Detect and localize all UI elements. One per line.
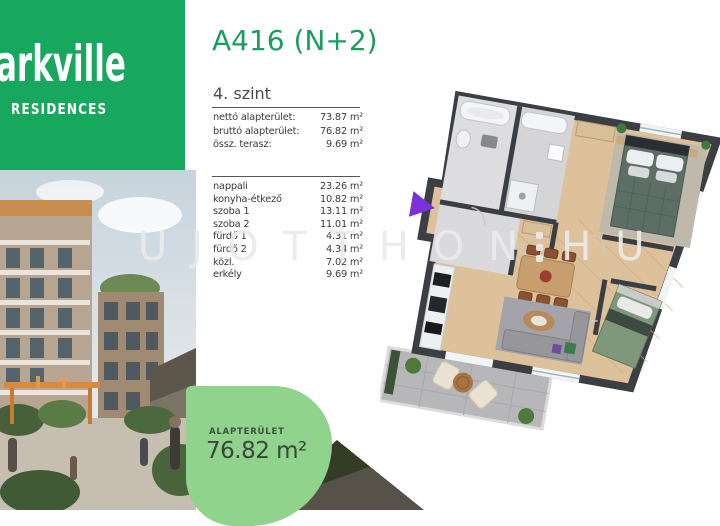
row-label: szoba 2 [213, 219, 249, 232]
row-value: 4.34 m² [326, 244, 363, 257]
row-label: közl. [213, 257, 234, 270]
summary-row: össz. terasz: 9.69 m² [213, 138, 363, 152]
row-label: konyha-étkező [213, 194, 282, 207]
floorplan-image [380, 78, 720, 482]
room-row: fürdő 2 4.34 m² [213, 244, 363, 257]
row-label: nappali [213, 181, 248, 194]
room-row: erkély 9.69 m² [213, 269, 363, 282]
row-label: bruttó alapterület: [213, 125, 299, 139]
row-value: 9.69 m² [326, 138, 363, 152]
room-row: szoba 1 13.11 m² [213, 206, 363, 219]
row-value: 4.31 m² [326, 231, 363, 244]
floor-label: 4. szint [213, 84, 271, 103]
summary-row: nettó alapterület: 73.87 m² [213, 111, 363, 125]
area-badge-label: ALAPTERÜLET [209, 427, 285, 437]
row-value: 7.02 m² [326, 257, 363, 270]
brand-name: arkville [0, 38, 126, 90]
room-table: nappali 23.26 m² konyha-étkező 10.82 m² … [213, 181, 363, 282]
building-photo [0, 170, 196, 510]
row-label: nettó alapterület: [213, 111, 295, 125]
divider-line [212, 107, 360, 108]
summary-table: nettó alapterület: 73.87 m² bruttó alapt… [213, 111, 363, 152]
brand-subtitle: RESIDENCES [11, 100, 107, 118]
room-row: közl. 7.02 m² [213, 257, 363, 270]
room-row: fürdő 1 4.31 m² [213, 231, 363, 244]
row-value: 9.69 m² [326, 269, 363, 282]
logo-block: arkville RESIDENCES [0, 0, 185, 170]
room-row: konyha-étkező 10.82 m² [213, 194, 363, 207]
row-value: 76.82 m² [320, 125, 363, 139]
apartment-title: A416 (N+2) [212, 24, 378, 57]
row-label: fürdő 2 [213, 244, 247, 257]
row-label: erkély [213, 269, 242, 282]
row-label: fürdő 1 [213, 231, 247, 244]
row-label: szoba 1 [213, 206, 249, 219]
row-value: 23.26 m² [320, 181, 363, 194]
row-label: össz. terasz: [213, 138, 271, 152]
room-row: nappali 23.26 m² [213, 181, 363, 194]
row-value: 11.01 m² [320, 219, 363, 232]
row-value: 10.82 m² [320, 194, 363, 207]
row-value: 73.87 m² [320, 111, 363, 125]
area-badge-value: 76.82 m² [206, 438, 307, 464]
divider-line [212, 176, 360, 177]
row-value: 13.11 m² [320, 206, 363, 219]
room-row: szoba 2 11.01 m² [213, 219, 363, 232]
summary-row: bruttó alapterület: 76.82 m² [213, 125, 363, 139]
